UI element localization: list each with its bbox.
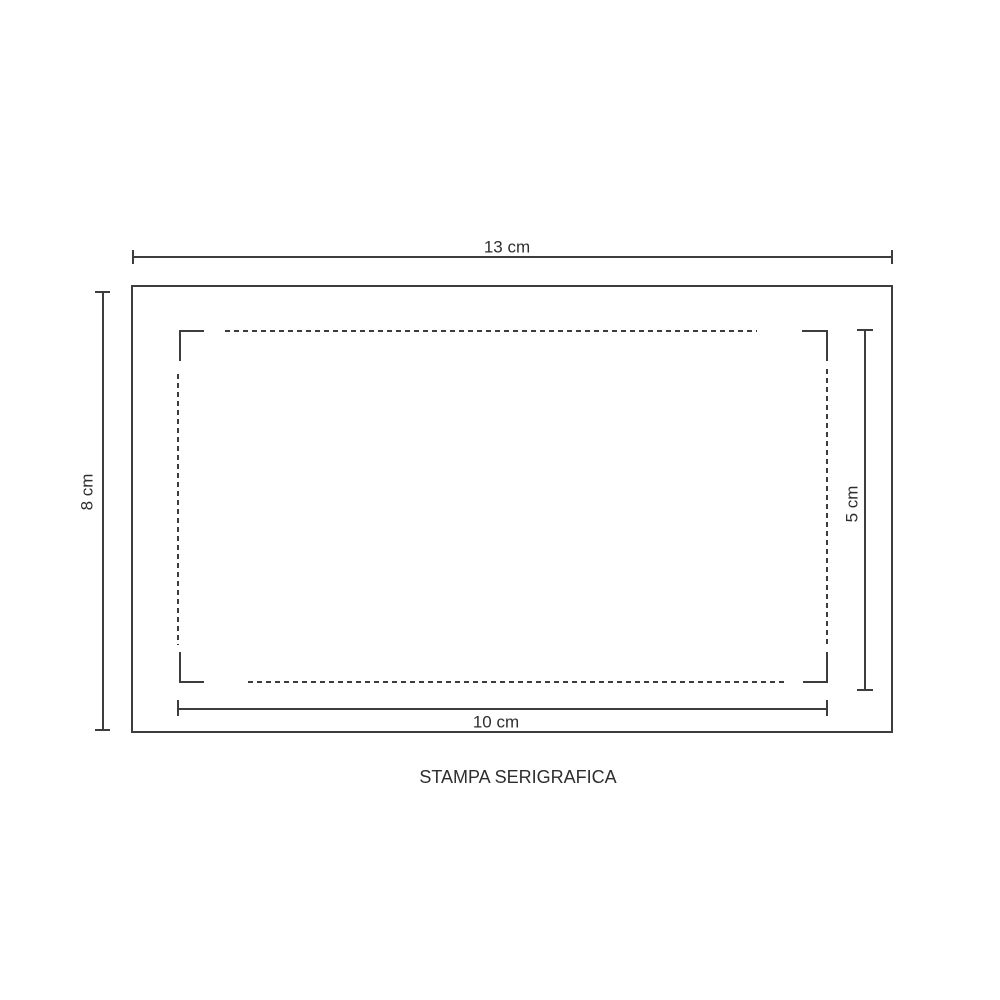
corner-mark-bottom-left-h (179, 681, 204, 683)
dimension-tick-outer-width-left (132, 250, 134, 264)
dimension-tick-outer-width-right (891, 250, 893, 264)
dimension-tick-print-width-right (826, 700, 828, 716)
caption: STAMPA SERIGRAFICA (419, 768, 616, 786)
corner-mark-bottom-right-h (803, 681, 828, 683)
dimension-line-print-height (864, 330, 866, 691)
print-area-dashed-left (177, 374, 179, 645)
corner-mark-top-right-v (826, 330, 828, 361)
print-area-dashed-right (826, 369, 828, 645)
dimension-tick-print-height-top (857, 329, 873, 331)
print-area-dashed-top (225, 330, 757, 332)
dim-label-print-height: 5 cm (844, 486, 861, 523)
corner-mark-bottom-right-v (826, 652, 828, 683)
corner-mark-top-right-h (802, 330, 828, 332)
corner-mark-bottom-left-v (179, 652, 181, 683)
corner-mark-top-left-v (179, 330, 181, 361)
dimension-tick-print-width-left (177, 700, 179, 716)
corner-mark-top-left-h (179, 330, 204, 332)
print-area-dashed-bottom (248, 681, 785, 683)
dim-label-print-width: 10 cm (473, 714, 519, 731)
dimension-line-print-width (178, 708, 827, 710)
dimension-tick-outer-height-bottom (95, 729, 110, 731)
technical-drawing: 13 cm 8 cm 10 cm 5 cm STAMPA SERIGRAFICA (0, 0, 1000, 1000)
dim-label-outer-width: 13 cm (484, 239, 530, 256)
dimension-tick-print-height-bottom (857, 689, 873, 691)
dimension-line-outer-height (102, 292, 104, 730)
dim-label-outer-height: 8 cm (79, 474, 96, 511)
outer-rectangle (131, 285, 893, 733)
dimension-tick-outer-height-top (95, 291, 110, 293)
